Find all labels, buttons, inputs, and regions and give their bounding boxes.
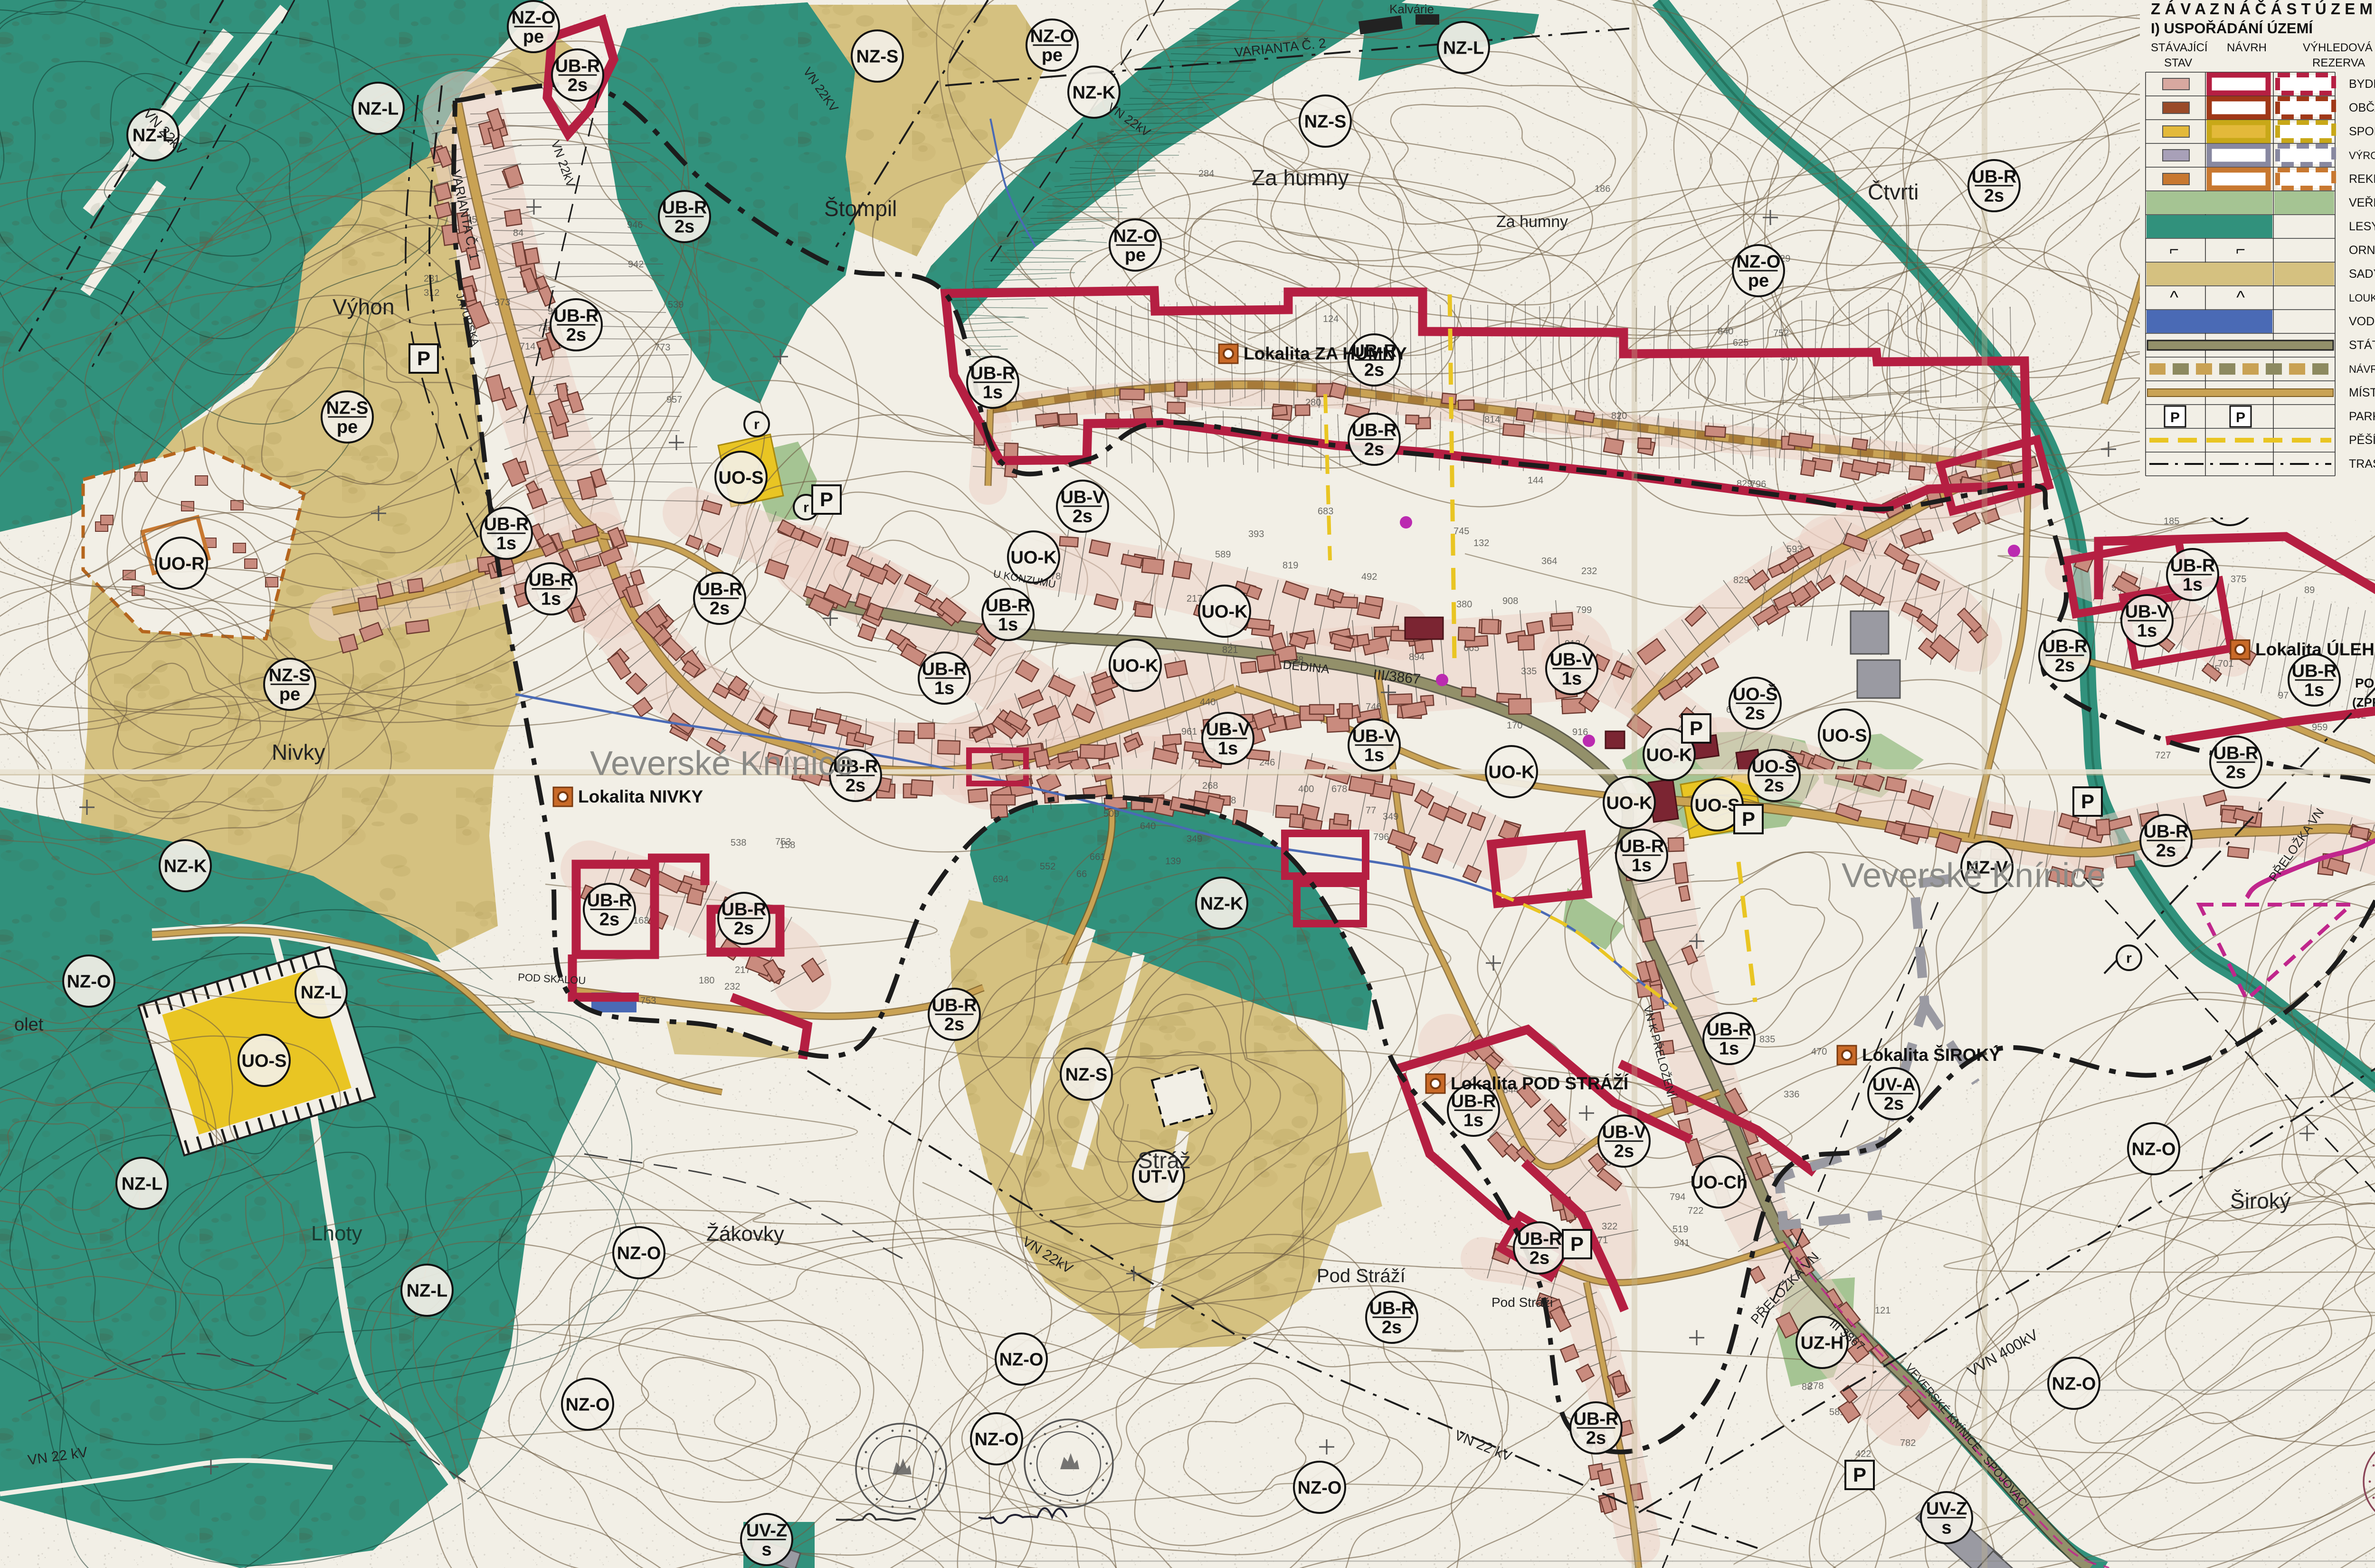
- svg-text:Výhon: Výhon: [332, 294, 394, 319]
- svg-text:Lokalita POD STRÁŽÍ: Lokalita POD STRÁŽÍ: [1451, 1073, 1629, 1093]
- svg-text:UB-V: UB-V: [2125, 602, 2170, 622]
- svg-text:794: 794: [1670, 1192, 1685, 1202]
- svg-text:NZ-S: NZ-S: [1065, 1065, 1108, 1085]
- svg-text:NZ-O: NZ-O: [1298, 1478, 1342, 1498]
- svg-text:814: 814: [1484, 415, 1500, 425]
- svg-text:961: 961: [1181, 727, 1197, 737]
- svg-text:ORNÁ PŮDA: ORNÁ PŮDA: [2349, 242, 2375, 257]
- svg-text:1s: 1s: [1562, 669, 1582, 689]
- svg-text:364: 364: [1541, 556, 1557, 567]
- svg-text:PĚŠÍ TRASY: PĚŠÍ TRASY: [2349, 433, 2375, 447]
- svg-text:UB-R: UB-R: [1369, 1298, 1415, 1318]
- svg-text:NZ-L: NZ-L: [358, 99, 399, 119]
- svg-text:819: 819: [1282, 560, 1298, 571]
- svg-text:2s: 2s: [674, 217, 694, 236]
- svg-text:P: P: [820, 488, 833, 510]
- svg-text:625: 625: [1733, 338, 1748, 348]
- svg-text:492: 492: [1361, 572, 1377, 582]
- svg-text:752: 752: [1773, 328, 1789, 339]
- svg-text:UO-K: UO-K: [1010, 548, 1057, 567]
- svg-text:1s: 1s: [1632, 855, 1652, 875]
- svg-text:r: r: [2126, 951, 2132, 966]
- svg-text:UB-R: UB-R: [555, 56, 600, 76]
- svg-text:P: P: [2081, 790, 2094, 812]
- svg-text:132: 132: [1473, 538, 1489, 548]
- svg-text:BYDLENÍ: BYDLENÍ: [2349, 77, 2375, 91]
- svg-text:UB-R: UB-R: [922, 659, 967, 679]
- svg-text:SPORTOVNÍ PLOCHY: SPORTOVNÍ PLOCHY: [2349, 124, 2375, 138]
- svg-text:UB-R: UB-R: [722, 899, 767, 919]
- svg-text:77: 77: [1366, 805, 1376, 816]
- svg-text:UB-R: UB-R: [2292, 661, 2337, 681]
- svg-text:840: 840: [1718, 326, 1733, 337]
- svg-text:UB-R: UB-R: [697, 579, 742, 599]
- svg-text:Široký: Široký: [2230, 1189, 2291, 1213]
- svg-text:UB-R: UB-R: [587, 890, 632, 910]
- svg-text:UO-K: UO-K: [1646, 745, 1692, 765]
- svg-text:678: 678: [1331, 784, 1347, 794]
- svg-text:REZERVA: REZERVA: [2312, 57, 2365, 69]
- svg-text:LOUKY, PASTVINY - TRVALÉ TRAVN: LOUKY, PASTVINY - TRVALÉ TRAVNÍ POROSTY: [2349, 292, 2375, 304]
- svg-text:170: 170: [1507, 720, 1522, 731]
- svg-text:1s: 1s: [2304, 680, 2324, 700]
- svg-text:UO-Ch: UO-Ch: [1691, 1172, 1748, 1192]
- svg-text:UO-R: UO-R: [158, 554, 204, 574]
- svg-text:Štompil: Štompil: [824, 196, 897, 221]
- svg-text:1s: 1s: [496, 533, 516, 553]
- svg-text:942: 942: [628, 259, 644, 270]
- svg-text:782: 782: [1900, 1438, 1916, 1448]
- svg-text:NÁVRH PŘELOŽENÍ STÁTNÍ SILNICE: NÁVRH PŘELOŽENÍ STÁTNÍ SILNICE III.TŘ.: [2349, 363, 2375, 375]
- svg-text:NZ-O: NZ-O: [999, 1350, 1044, 1370]
- svg-text:66: 66: [1076, 869, 1087, 879]
- svg-text:UB-R: UB-R: [1707, 1020, 1752, 1039]
- svg-text:P: P: [417, 347, 430, 369]
- svg-text:NZ-K: NZ-K: [1073, 83, 1116, 103]
- svg-text:UB-R: UB-R: [1574, 1409, 1619, 1429]
- svg-text:TRASY ELEKTRICKÉHO VEDENÍ: TRASY ELEKTRICKÉHO VEDENÍ: [2349, 457, 2375, 471]
- svg-text:OBČANSKÁ VYBAVENOST: OBČANSKÁ VYBAVENOST: [2349, 101, 2375, 114]
- svg-text:375: 375: [2231, 574, 2246, 585]
- svg-text:P: P: [1853, 1464, 1866, 1486]
- svg-text:VODNÍ PLOCHY A TOKY: VODNÍ PLOCHY A TOKY: [2349, 314, 2375, 328]
- svg-text:2s: 2s: [1073, 506, 1092, 526]
- svg-text:1s: 1s: [1364, 745, 1384, 765]
- svg-text:UB-R: UB-R: [2144, 822, 2189, 841]
- svg-text:2s: 2s: [1614, 1141, 1634, 1161]
- svg-text:NZ-S: NZ-S: [326, 398, 369, 418]
- svg-text:2s: 2s: [1764, 775, 1784, 795]
- svg-text:232: 232: [724, 982, 740, 992]
- svg-text:745: 745: [1453, 526, 1469, 537]
- svg-text:NZ-O: NZ-O: [2052, 1374, 2096, 1394]
- svg-text:UB-R: UB-R: [1451, 1091, 1496, 1111]
- svg-text:NZ-K: NZ-K: [1200, 894, 1244, 914]
- svg-text:UB-R: UB-R: [662, 198, 707, 217]
- svg-text:NZ-O: NZ-O: [1030, 26, 1074, 46]
- svg-text:UB-R: UB-R: [1619, 836, 1664, 856]
- svg-text:UO-S: UO-S: [1822, 726, 1867, 746]
- svg-text:UB-R: UB-R: [2170, 556, 2215, 576]
- svg-text:84: 84: [513, 228, 523, 238]
- svg-text:UB-R: UB-R: [554, 306, 599, 326]
- svg-text:2s: 2s: [1382, 1317, 1402, 1337]
- svg-text:820: 820: [1611, 411, 1627, 421]
- svg-text:714: 714: [520, 341, 535, 352]
- svg-text:⌐: ⌐: [2169, 241, 2179, 259]
- svg-text:olet: olet: [14, 1015, 44, 1035]
- svg-text:s: s: [761, 1540, 771, 1559]
- svg-text:(ZPRACOVAL ATELIER PROJEKTIS B: (ZPRACOVAL ATELIER PROJEKTIS BRNO - 10/1…: [2352, 695, 2375, 709]
- svg-text:P: P: [2236, 410, 2245, 425]
- svg-text:P: P: [1570, 1233, 1584, 1255]
- svg-text:509: 509: [1103, 809, 1119, 819]
- svg-text:UO-Š: UO-Š: [1752, 755, 1797, 776]
- svg-text:NZ-L: NZ-L: [407, 1281, 448, 1301]
- svg-text:Lokalita ZA HUMNY: Lokalita ZA HUMNY: [1244, 344, 1407, 363]
- svg-text:335: 335: [1521, 666, 1537, 677]
- svg-text:STAV: STAV: [2164, 57, 2192, 69]
- svg-text:NZ-L: NZ-L: [122, 1174, 163, 1194]
- svg-text:P: P: [2170, 410, 2180, 425]
- svg-text:835: 835: [1759, 1034, 1775, 1045]
- svg-text:959: 959: [2312, 722, 2327, 733]
- svg-text:pe: pe: [1125, 245, 1146, 265]
- svg-text:NZ-O: NZ-O: [975, 1429, 1019, 1449]
- svg-text:s: s: [1941, 1518, 1951, 1538]
- svg-text:UB-V: UB-V: [1550, 650, 1595, 670]
- svg-text:2s: 2s: [566, 325, 586, 345]
- svg-text:1s: 1s: [1463, 1110, 1483, 1130]
- svg-text:589: 589: [1215, 549, 1231, 560]
- svg-text:946: 946: [627, 220, 643, 230]
- svg-text:1s: 1s: [934, 678, 954, 698]
- svg-text:pe: pe: [1042, 45, 1063, 65]
- svg-text:1s: 1s: [983, 382, 1003, 402]
- svg-text:UO-K: UO-K: [1201, 602, 1248, 622]
- svg-text:Za humny: Za humny: [1252, 165, 1349, 190]
- svg-text:UB-V: UB-V: [1602, 1122, 1647, 1142]
- svg-text:2s: 2s: [1529, 1248, 1549, 1268]
- svg-text:470: 470: [1811, 1047, 1827, 1057]
- svg-text:727: 727: [2155, 750, 2171, 761]
- svg-text:661: 661: [1090, 852, 1105, 862]
- svg-text:139: 139: [1165, 856, 1181, 867]
- svg-text:186: 186: [1595, 184, 1610, 194]
- svg-text:393: 393: [1248, 529, 1264, 539]
- svg-text:Pod Stráží: Pod Stráží: [1317, 1266, 1406, 1286]
- svg-text:LESY, KRAJINNÁ A LINIOVÁ ZELE: LESY, KRAJINNÁ A LINIOVÁ ZELEŇ: [2349, 219, 2375, 233]
- svg-text:UB-R: UB-R: [529, 570, 574, 590]
- svg-text:NZ-L: NZ-L: [301, 982, 342, 1002]
- svg-text:UO-S: UO-S: [719, 468, 764, 488]
- svg-text:UO-Š: UO-Š: [1733, 683, 1778, 704]
- svg-text:pe: pe: [523, 27, 544, 47]
- svg-text:1s: 1s: [998, 614, 1018, 634]
- svg-text:NZ-O: NZ-O: [617, 1243, 661, 1263]
- svg-text:124: 124: [1323, 314, 1339, 324]
- svg-text:MÍSTNÍ KOMUNIKACE: MÍSTNÍ KOMUNIKACE: [2349, 386, 2375, 399]
- svg-text:773: 773: [655, 342, 670, 353]
- svg-text:I) USPOŘÁDÁNÍ ÚZEMÍ: I) USPOŘÁDÁNÍ ÚZEMÍ: [2151, 19, 2313, 37]
- svg-text:753: 753: [775, 837, 791, 847]
- svg-text:NZ-O: NZ-O: [2132, 1139, 2176, 1159]
- svg-text:UB-R: UB-R: [970, 363, 1016, 383]
- svg-text:336: 336: [1784, 1089, 1799, 1100]
- svg-text:284: 284: [1198, 169, 1214, 179]
- svg-text:1s: 1s: [2183, 575, 2203, 595]
- svg-text:Stráž: Stráž: [1138, 1148, 1191, 1173]
- svg-text:400: 400: [1298, 784, 1314, 794]
- svg-text:322: 322: [1602, 1221, 1617, 1232]
- svg-text:pe: pe: [1748, 271, 1769, 291]
- svg-text:r: r: [803, 500, 809, 516]
- svg-text:519: 519: [1672, 1224, 1688, 1235]
- svg-text:UB-V: UB-V: [1206, 719, 1251, 739]
- svg-text:UB-V: UB-V: [1352, 726, 1397, 746]
- svg-text:640: 640: [1140, 821, 1156, 831]
- svg-text:Lokalita NIVKY: Lokalita NIVKY: [578, 787, 703, 806]
- svg-text:683: 683: [1318, 506, 1333, 517]
- svg-text:NÁVRH: NÁVRH: [2227, 41, 2267, 54]
- svg-text:268: 268: [1202, 781, 1218, 791]
- svg-text:Za humny: Za humny: [1496, 213, 1568, 231]
- svg-text:1s: 1s: [1218, 738, 1238, 758]
- svg-text:Z Á V A Z N Á Č Á S T Ú Z: Z Á V A Z N Á Č Á S T Ú Z E M N Í H O P …: [2151, 0, 2375, 18]
- svg-text:UB-R: UB-R: [1972, 167, 2017, 187]
- svg-text:⌐: ⌐: [2236, 241, 2245, 259]
- svg-text:NZ-O: NZ-O: [566, 1395, 610, 1415]
- svg-text:1s: 1s: [2137, 621, 2157, 641]
- svg-text:STÁVAJÍCÍ: STÁVAJÍCÍ: [2151, 41, 2208, 54]
- svg-text:^: ^: [2170, 288, 2178, 308]
- svg-text:NZ-S: NZ-S: [1304, 112, 1347, 132]
- svg-text:2s: 2s: [599, 909, 619, 929]
- svg-text:UB-R: UB-R: [2213, 743, 2259, 763]
- svg-text:REKREACE: REKREACE: [2349, 172, 2375, 186]
- svg-text:380: 380: [1456, 599, 1472, 610]
- svg-text:2s: 2s: [2055, 655, 2075, 675]
- svg-text:538: 538: [731, 838, 746, 848]
- svg-text:UB-R: UB-R: [1517, 1229, 1562, 1249]
- svg-text:Lhoty: Lhoty: [311, 1222, 362, 1245]
- svg-text:796: 796: [1373, 832, 1389, 842]
- svg-text:2s: 2s: [1745, 703, 1765, 723]
- svg-text:pe: pe: [337, 417, 358, 437]
- svg-text:NZ-O: NZ-O: [1737, 252, 1781, 272]
- svg-text:pe: pe: [279, 684, 300, 704]
- svg-text:UO-K: UO-K: [1488, 762, 1535, 782]
- svg-text:Kalvárie: Kalvárie: [1389, 2, 1434, 16]
- svg-text:Veverské Knínice: Veverské Knínice: [590, 745, 854, 783]
- svg-text:PARKOVIŠTĚ: PARKOVIŠTĚ: [2349, 409, 2375, 423]
- svg-text:NZ-O: NZ-O: [1113, 226, 1158, 246]
- svg-text:UB-R: UB-R: [2042, 636, 2088, 656]
- svg-text:Lokalita ÚLEHLE: Lokalita ÚLEHLE: [2255, 639, 2375, 659]
- svg-text:89: 89: [2304, 585, 2315, 595]
- svg-text:Čtvrti: Čtvrti: [1868, 179, 1919, 204]
- svg-text:185: 185: [2164, 516, 2179, 527]
- svg-text:UV-Z: UV-Z: [746, 1521, 788, 1540]
- svg-text:2s: 2s: [1984, 186, 2004, 206]
- svg-text:Žákovky: Žákovky: [706, 1222, 784, 1246]
- svg-text:231: 231: [424, 274, 439, 284]
- svg-text:SADY, ZAHRADY: SADY, ZAHRADY: [2349, 267, 2375, 281]
- svg-text:UO-S: UO-S: [242, 1051, 287, 1071]
- svg-text:349: 349: [1187, 834, 1202, 844]
- svg-text:UO-S: UO-S: [1695, 795, 1740, 815]
- svg-text:422: 422: [1855, 1449, 1871, 1459]
- svg-text:2s: 2s: [1884, 1094, 1904, 1114]
- svg-text:232: 232: [1581, 566, 1597, 576]
- svg-text:722: 722: [1688, 1206, 1703, 1216]
- svg-text:NZ-S: NZ-S: [269, 665, 311, 685]
- svg-text:941: 941: [1674, 1238, 1690, 1248]
- svg-text:P: P: [1742, 808, 1755, 830]
- svg-text:821: 821: [1222, 645, 1238, 655]
- svg-text:163: 163: [633, 916, 649, 926]
- svg-text:349: 349: [1383, 812, 1398, 822]
- svg-text:440: 440: [1200, 697, 1216, 708]
- svg-text:UO-K: UO-K: [1112, 656, 1159, 676]
- svg-text:121: 121: [1875, 1305, 1890, 1316]
- svg-text:Veverské Knínice: Veverské Knínice: [1842, 857, 2106, 895]
- svg-text:Nivky: Nivky: [272, 740, 325, 765]
- svg-text:VÝROBA, SKLADOVÁNÍ, TECHNICKÁ: VÝROBA, SKLADOVÁNÍ, TECHNICKÁ VYBAVENOST: [2349, 150, 2375, 161]
- svg-text:694: 694: [993, 874, 1008, 885]
- svg-text:VÝHLEDOVÁ: VÝHLEDOVÁ: [2303, 41, 2373, 54]
- svg-text:829: 829: [1733, 575, 1749, 586]
- svg-text:Pod Stráži: Pod Stráži: [1491, 1295, 1553, 1310]
- svg-text:UV-A: UV-A: [1872, 1075, 1916, 1095]
- svg-text:2s: 2s: [944, 1014, 964, 1034]
- svg-text:144: 144: [1528, 475, 1543, 486]
- svg-text:NZ-O: NZ-O: [67, 972, 111, 992]
- svg-text:2s: 2s: [710, 598, 730, 618]
- svg-text:NZ-S: NZ-S: [856, 47, 899, 66]
- svg-text:UB-R: UB-R: [932, 995, 977, 1015]
- svg-text:753: 753: [640, 996, 656, 1006]
- svg-text:VEŘEJNÁ A VYHRAZENÁ ZELEŇ: VEŘEJNÁ A VYHRAZENÁ ZELEŇ: [2349, 196, 2375, 209]
- svg-text:180: 180: [699, 975, 714, 986]
- svg-text:UO-K: UO-K: [1606, 793, 1653, 813]
- svg-text:2s: 2s: [1586, 1428, 1606, 1448]
- svg-text:P: P: [1690, 717, 1703, 739]
- svg-text:2s: 2s: [2226, 762, 2246, 782]
- svg-text:PODLE ZASTAVOVACÍ STUDIE Z 10/: PODLE ZASTAVOVACÍ STUDIE Z 10/1996: [2355, 676, 2375, 690]
- svg-text:UB-R: UB-R: [1352, 420, 1397, 440]
- svg-text:278: 278: [1808, 1381, 1824, 1391]
- svg-text:373: 373: [494, 297, 510, 308]
- svg-text:2s: 2s: [2156, 841, 2176, 860]
- svg-text:UV-Z: UV-Z: [1926, 1499, 1967, 1519]
- svg-text:908: 908: [1502, 596, 1518, 606]
- svg-text:1s: 1s: [1719, 1039, 1739, 1058]
- svg-text:1s: 1s: [541, 589, 561, 609]
- svg-text:r: r: [754, 417, 760, 433]
- svg-text:957: 957: [666, 395, 682, 405]
- svg-text:701: 701: [2218, 659, 2233, 669]
- svg-text:UB-V: UB-V: [1061, 487, 1105, 507]
- svg-text:2s: 2s: [734, 918, 754, 938]
- svg-text:2s: 2s: [1364, 439, 1384, 459]
- svg-text:UZ-H: UZ-H: [1801, 1333, 1844, 1353]
- svg-text:Lokalita ŠIROKÝ: Lokalita ŠIROKÝ: [1862, 1045, 2001, 1065]
- svg-text:2s: 2s: [568, 75, 588, 95]
- svg-text:^: ^: [2236, 288, 2245, 308]
- svg-text:799: 799: [1576, 605, 1592, 615]
- svg-text:UB-R: UB-R: [986, 595, 1031, 615]
- svg-text:NZ-L: NZ-L: [1443, 38, 1484, 58]
- svg-text:NZ-O: NZ-O: [512, 8, 556, 28]
- svg-text:552: 552: [1040, 861, 1055, 872]
- svg-text:STÁTNÍ SILNICE III. TŘÍDY: STÁTNÍ SILNICE III. TŘÍDY: [2349, 338, 2375, 352]
- svg-text:NZ-K: NZ-K: [164, 856, 207, 876]
- svg-text:UB-R: UB-R: [484, 514, 529, 534]
- svg-text:97: 97: [2278, 690, 2289, 701]
- svg-text:539: 539: [668, 300, 684, 310]
